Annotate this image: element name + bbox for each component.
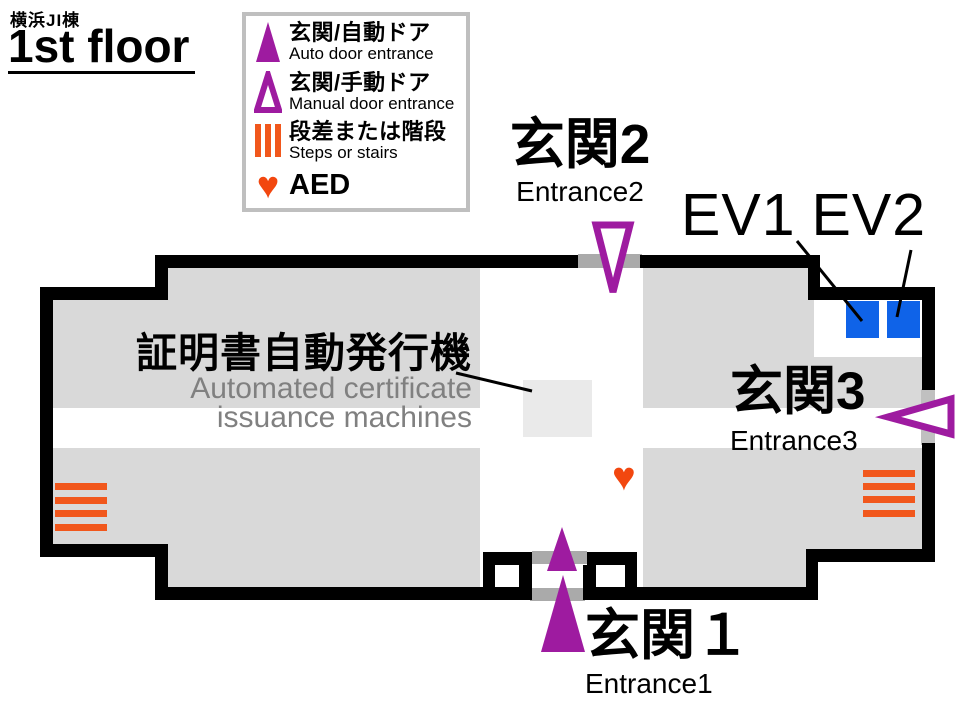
entrance1-label-en: Entrance1 bbox=[585, 670, 750, 698]
floor-area-right-bottom bbox=[643, 448, 929, 594]
entrance2-label-en: Entrance2 bbox=[470, 178, 690, 206]
certificate-machine-label: 証明書自動発行機 Automated certificate issuance … bbox=[96, 332, 472, 432]
entrance1-label-jp: 玄関１ bbox=[585, 604, 750, 667]
entrance1-auto-door-icon-outer bbox=[541, 575, 585, 652]
entrance3-label-en: Entrance3 bbox=[730, 427, 865, 455]
entrance2-manual-door-icon bbox=[596, 225, 630, 292]
entrance3-label: 玄関3 Entrance3 bbox=[730, 363, 865, 455]
entrance1-auto-door-icon-inner bbox=[547, 527, 577, 571]
ev2-label: EV2 bbox=[812, 186, 927, 245]
floor-map-page: 横浜JI棟 1st floor 玄関/自動ドア Auto door entran… bbox=[0, 0, 960, 720]
machine-label-jp: 証明書自動発行機 bbox=[96, 332, 472, 375]
entrance3-label-jp: 玄関3 bbox=[730, 363, 865, 421]
certificate-machine-block bbox=[523, 380, 592, 437]
entrance2-label: 玄関2 Entrance2 bbox=[470, 114, 690, 206]
ev1-label: EV1 bbox=[681, 186, 796, 245]
entrance2-label-jp: 玄関2 bbox=[470, 114, 690, 175]
elevator-ev2 bbox=[887, 301, 920, 338]
entrance1-label: 玄関１ Entrance1 bbox=[585, 604, 750, 698]
machine-label-en2: issuance machines bbox=[96, 404, 472, 433]
floor-area-left-bottom bbox=[47, 448, 480, 594]
aed-heart-map-icon: ♥ bbox=[612, 457, 636, 497]
machine-label-en1: Automated certificate bbox=[96, 375, 472, 404]
elevator-labels: EV1 EV2 bbox=[681, 186, 926, 245]
